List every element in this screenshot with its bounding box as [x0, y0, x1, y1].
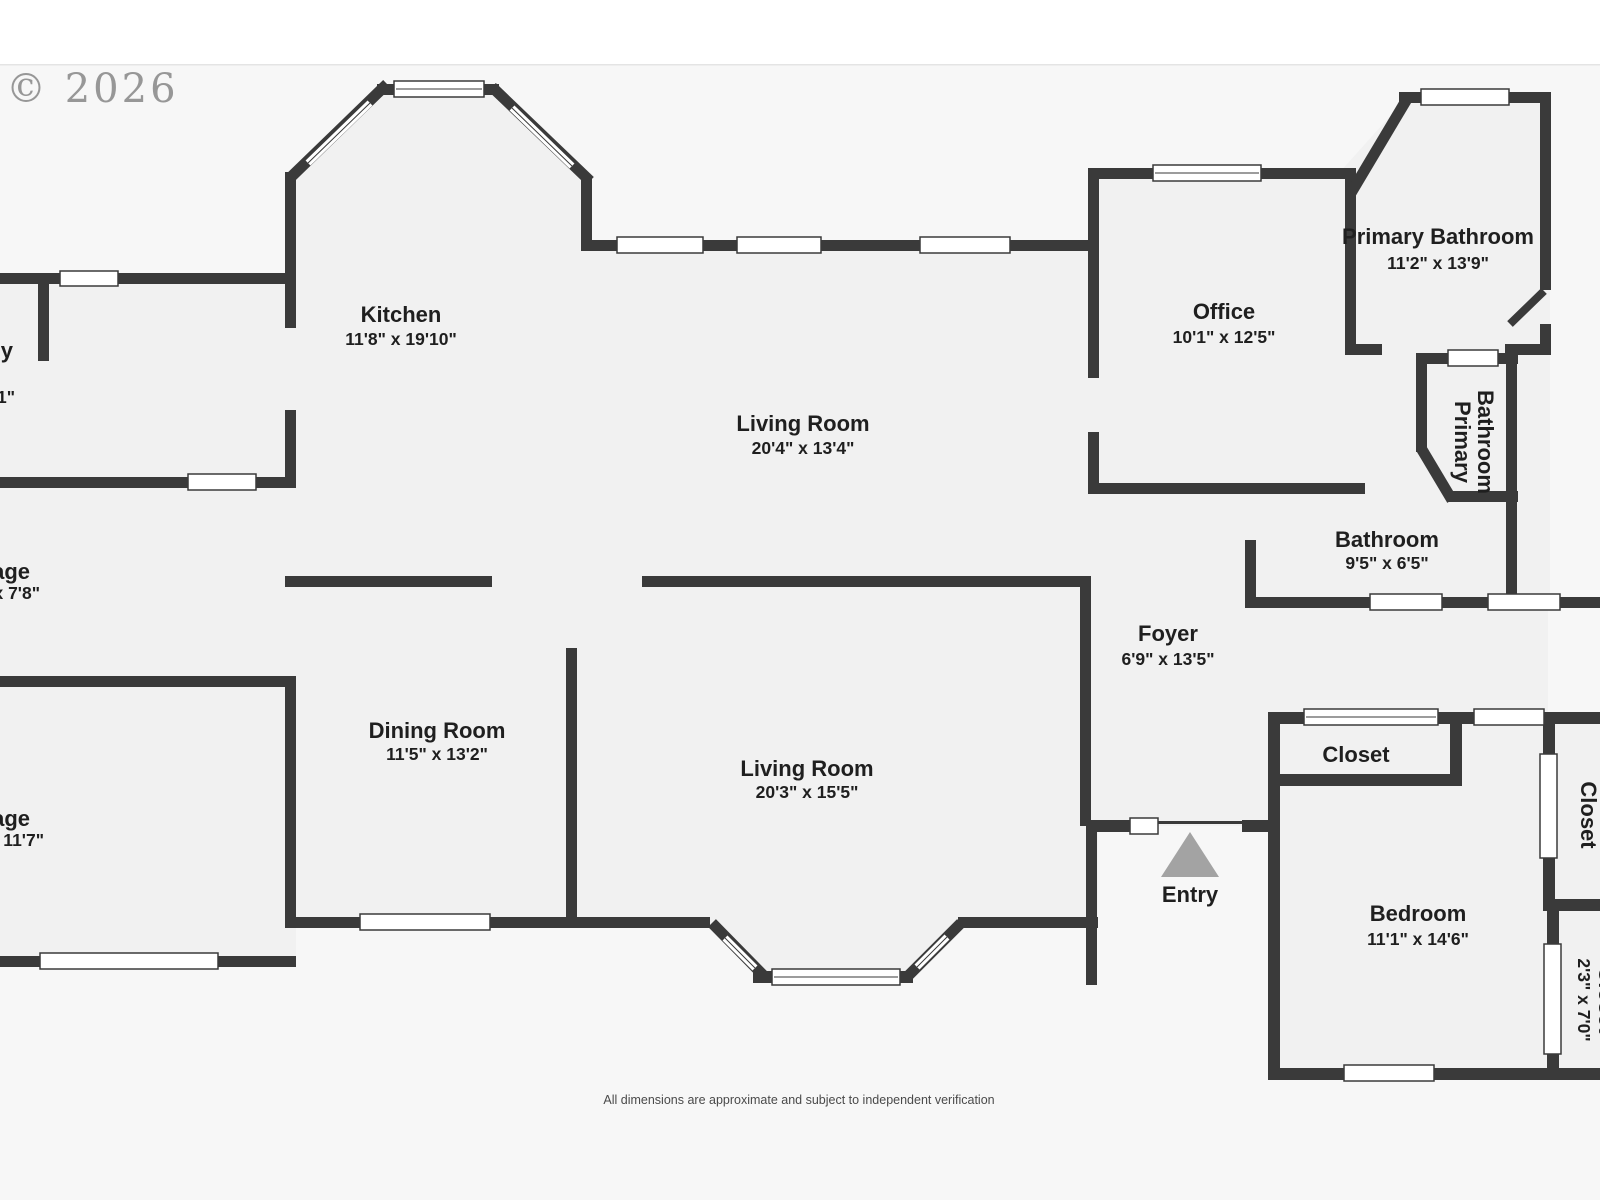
wall-entry-west — [1086, 820, 1132, 832]
window-bathroom-bottom-1 — [1370, 594, 1442, 610]
floor-left-rooms — [0, 273, 296, 967]
wall-left-stub — [38, 273, 49, 361]
wall-dining-divider — [566, 648, 577, 925]
label-primary-bathroom-small-line1: Primary — [1450, 401, 1475, 484]
wall-left-divider2 — [0, 676, 296, 687]
label-closet-bedroom: Closet — [1322, 742, 1390, 767]
wall-closet-right — [1450, 712, 1462, 786]
copyright-watermark: © 2026 — [6, 66, 179, 112]
label-bathroom: Bathroom — [1335, 527, 1439, 552]
window-bedroom-top-2 — [1474, 709, 1544, 725]
wall-left-right3 — [285, 676, 296, 928]
label-left-middle-fragment: age — [0, 559, 30, 584]
dims-bathroom: 9'5" x 6'5" — [1345, 553, 1428, 573]
label-closet-right-lower: Closet — [1594, 966, 1600, 1034]
label-closet-right-upper: Closet — [1576, 781, 1600, 849]
wall-south-west — [285, 917, 710, 928]
label-primary-bathroom-small-line2: Bathroom — [1473, 390, 1498, 494]
dims-office: 10'1" x 12'5" — [1173, 327, 1276, 347]
dims-bedroom: 11'1" x 14'6" — [1367, 929, 1469, 949]
label-office: Office — [1193, 299, 1255, 324]
wall-foyer-left — [1080, 576, 1091, 826]
dims-dining: 11'5" x 13'2" — [386, 744, 488, 764]
window-bedroom-bottom — [1344, 1065, 1434, 1081]
wall-small-bath-right — [1506, 344, 1517, 608]
dims-primary-bathroom: 11'2" x 13'9" — [1387, 253, 1489, 273]
wall-south-east — [958, 917, 1098, 928]
wall-porch-left — [1086, 820, 1097, 985]
label-living-lower: Living Room — [740, 756, 873, 781]
wall-office-left-upper — [1088, 168, 1099, 378]
dims-left-top-fragment: 1" — [0, 387, 15, 407]
window-living-north-2 — [737, 237, 821, 253]
label-primary-bathroom: Primary Bathroom — [1342, 224, 1534, 249]
wall-bathroom-top — [1245, 483, 1365, 494]
window-primary-bath-top — [1421, 89, 1509, 105]
door-closet-upper — [1540, 754, 1557, 858]
label-left-bottom-fragment: age — [0, 806, 30, 831]
window-living-north-3 — [920, 237, 1010, 253]
dims-left-middle-fragment: x 7'8" — [0, 583, 40, 603]
dims-foyer: 6'9" x 13'5" — [1121, 649, 1214, 669]
window-bathroom-bottom-2 — [1488, 594, 1560, 610]
wall-closet-middle — [1543, 899, 1600, 911]
entry-threshold-line — [1158, 821, 1244, 824]
window-dining-south — [360, 914, 490, 930]
wall-entry-east — [1242, 820, 1270, 832]
wall-closet-bottom — [1268, 774, 1462, 786]
wall-kitchen-right — [581, 176, 592, 251]
wall-office-right — [1345, 168, 1356, 355]
window-left-divider1 — [188, 474, 256, 490]
dims-living-upper: 20'4" x 13'4" — [752, 438, 855, 458]
wall-small-bath-left — [1416, 353, 1427, 452]
label-entry: Entry — [1162, 882, 1219, 907]
door-closet-lower — [1544, 944, 1561, 1054]
wall-living-divider-east — [642, 576, 1090, 587]
window-living-north-1 — [617, 237, 703, 253]
label-living-upper: Living Room — [736, 411, 869, 436]
dims-living-lower: 20'3" x 15'5" — [756, 782, 859, 802]
label-left-top-fragment: y — [1, 338, 14, 363]
window-left-bottom — [40, 953, 218, 969]
window-left-top — [60, 271, 118, 286]
label-bedroom: Bedroom — [1370, 901, 1467, 926]
floorplan-canvas: Kitchen 11'8" x 19'10" Living Room 20'4"… — [0, 0, 1600, 1200]
dims-kitchen: 11'8" x 19'10" — [345, 329, 457, 349]
window-small-bath-top — [1448, 350, 1498, 366]
disclaimer-text: All dimensions are approximate and subje… — [603, 1093, 994, 1107]
wall-bedroom-left — [1268, 712, 1280, 1080]
dims-left-bottom-fragment: x 11'7" — [0, 830, 44, 850]
wall-primary-bath-right-upper — [1540, 92, 1551, 290]
label-dining: Dining Room — [369, 718, 506, 743]
wall-office-stub — [1356, 344, 1382, 355]
wall-left-right-lower — [285, 410, 296, 488]
window-entry — [1130, 818, 1158, 834]
label-kitchen: Kitchen — [361, 302, 442, 327]
wall-kitchen-left — [285, 172, 296, 328]
floorplan-page: Kitchen 11'8" x 19'10" Living Room 20'4"… — [0, 0, 1600, 1200]
dims-closet-right-lower: 2'3" x 7'0" — [1574, 958, 1594, 1041]
wall-living-divider-west — [285, 576, 492, 587]
top-divider-line — [0, 64, 1600, 66]
label-foyer: Foyer — [1138, 621, 1198, 646]
